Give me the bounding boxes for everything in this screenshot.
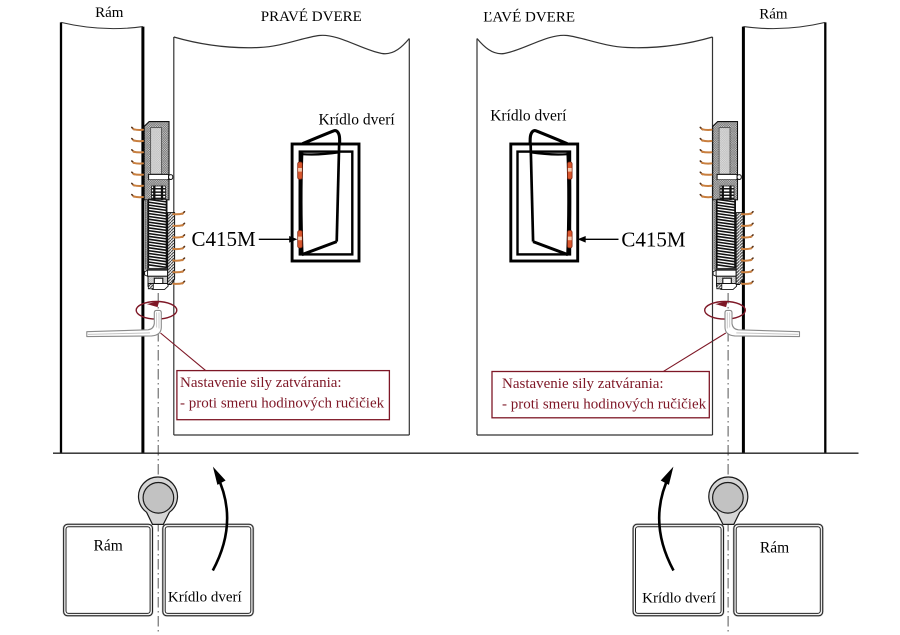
svg-text:Nastavenie sily zatvárania:: Nastavenie sily zatvárania: bbox=[180, 375, 342, 391]
svg-text:Rám: Rám bbox=[759, 7, 788, 23]
svg-text:C415M: C415M bbox=[192, 227, 257, 251]
svg-text:Nastavenie sily zatvárania:: Nastavenie sily zatvárania: bbox=[502, 376, 664, 392]
svg-text:C415M: C415M bbox=[621, 228, 686, 252]
svg-text:PRAVÉ DVERE: PRAVÉ DVERE bbox=[261, 8, 362, 25]
svg-text:Krídlo dverí: Krídlo dverí bbox=[490, 108, 567, 125]
svg-text:Rám: Rám bbox=[760, 540, 789, 557]
svg-text:Krídlo dverí: Krídlo dverí bbox=[642, 591, 716, 607]
svg-text:- proti smeru hodinových ručič: - proti smeru hodinových ručičiek bbox=[180, 396, 385, 412]
svg-text:Rám: Rám bbox=[94, 537, 123, 554]
svg-text:Krídlo dverí: Krídlo dverí bbox=[318, 112, 395, 129]
svg-text:- proti smeru hodinových ručič: - proti smeru hodinových ručičiek bbox=[502, 396, 707, 412]
svg-text:ĽAVÉ DVERE: ĽAVÉ DVERE bbox=[483, 9, 575, 26]
svg-text:Krídlo dverí: Krídlo dverí bbox=[168, 589, 242, 605]
svg-text:Rám: Rám bbox=[95, 5, 124, 21]
